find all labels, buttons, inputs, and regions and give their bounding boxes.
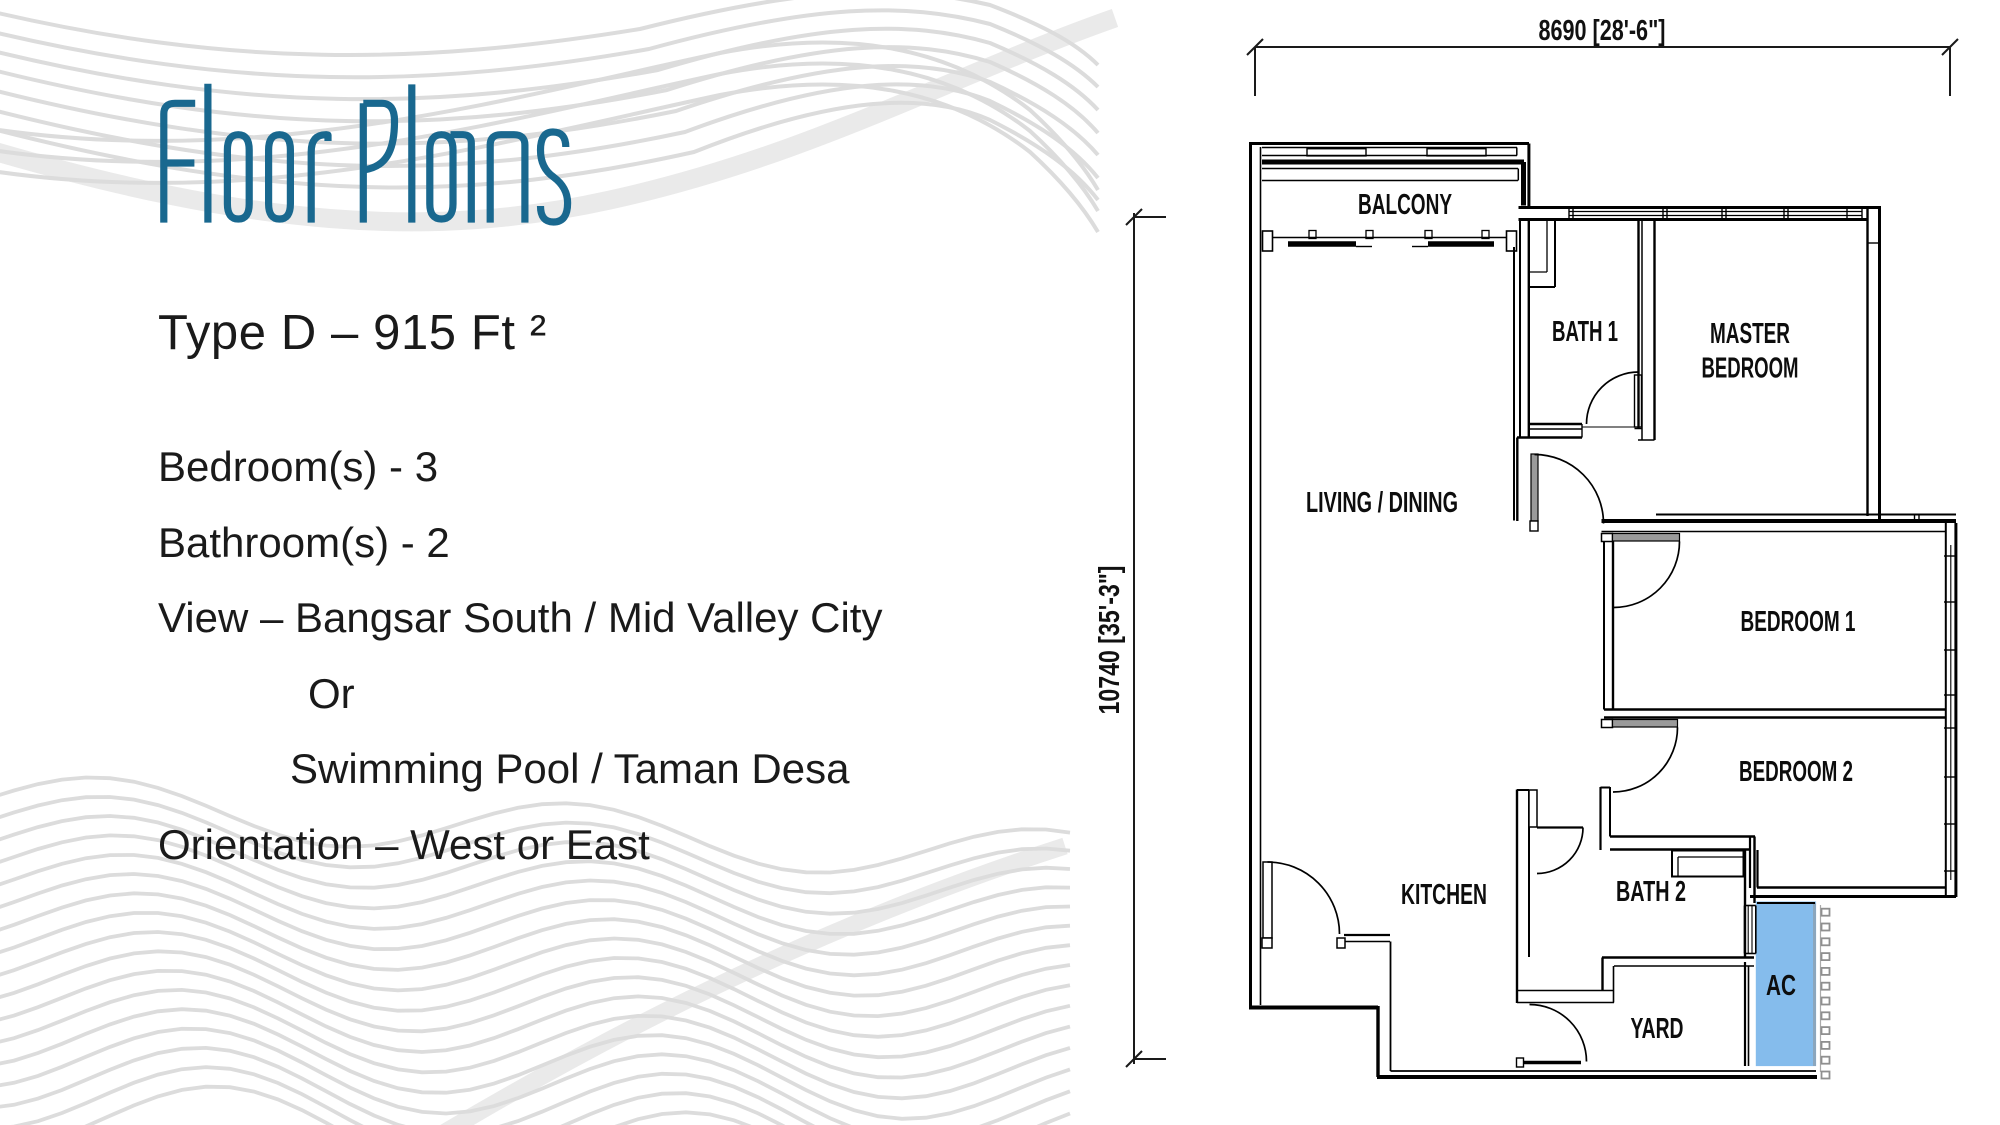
svg-text:BEDROOM 2: BEDROOM 2 [1739,756,1853,788]
svg-text:10740 [35'-3"]: 10740 [35'-3"] [1094,566,1126,715]
svg-text:BEDROOM 1: BEDROOM 1 [1741,606,1856,638]
svg-text:BALCONY: BALCONY [1358,189,1452,221]
svg-text:YARD: YARD [1631,1013,1684,1045]
svg-text:BEDROOM: BEDROOM [1702,353,1799,385]
svg-text:MASTER: MASTER [1710,318,1790,350]
svg-text:BATH 2: BATH 2 [1616,876,1686,908]
svg-text:BATH 1: BATH 1 [1552,316,1618,348]
svg-text:KITCHEN: KITCHEN [1401,879,1487,911]
svg-text:AC: AC [1766,970,1796,1002]
svg-text:LIVING / DINING: LIVING / DINING [1306,487,1458,519]
svg-text:8690 [28'-6"]: 8690 [28'-6"] [1539,15,1666,47]
